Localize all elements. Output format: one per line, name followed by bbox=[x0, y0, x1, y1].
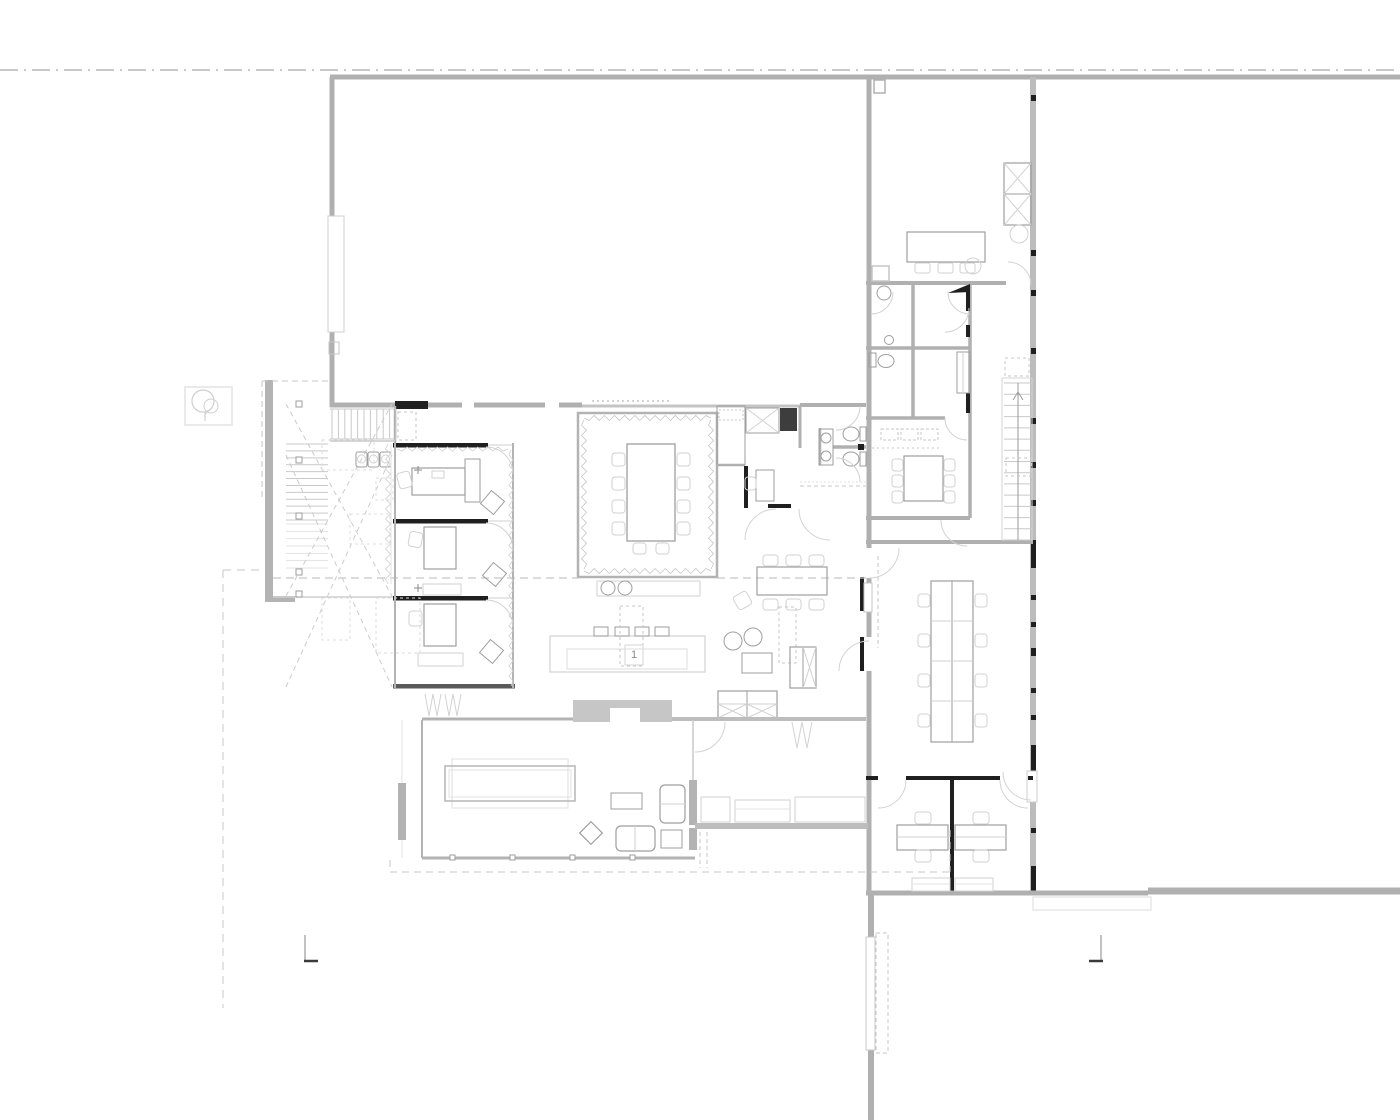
chair bbox=[892, 491, 903, 503]
window-mullion bbox=[1031, 715, 1036, 720]
armchair bbox=[481, 491, 505, 515]
ghost-box bbox=[350, 514, 390, 544]
chair bbox=[809, 555, 824, 566]
terrace-wall bbox=[265, 380, 273, 602]
post bbox=[296, 401, 302, 407]
conference-room bbox=[578, 413, 717, 577]
chair bbox=[396, 471, 413, 490]
desk bbox=[412, 468, 465, 495]
door-arc bbox=[945, 418, 967, 440]
ghost-box bbox=[901, 429, 918, 440]
stool bbox=[594, 627, 608, 636]
counter bbox=[735, 800, 790, 822]
desk-item bbox=[432, 471, 444, 478]
window-mullion bbox=[1031, 595, 1036, 600]
door-arc bbox=[799, 509, 830, 540]
stair-arrow bbox=[1018, 392, 1023, 400]
ghost-box bbox=[398, 412, 416, 440]
ghost-box bbox=[322, 440, 374, 470]
room-number-tag: 1 bbox=[623, 648, 645, 662]
yard-window bbox=[866, 937, 875, 1050]
cabinet-low bbox=[418, 653, 463, 666]
sink bbox=[821, 433, 831, 443]
chair bbox=[677, 477, 690, 490]
chair bbox=[677, 453, 690, 466]
side-table bbox=[742, 653, 772, 673]
window-mullion bbox=[1031, 745, 1036, 772]
meeting-table bbox=[904, 456, 943, 501]
door-arc bbox=[878, 780, 906, 808]
pouf bbox=[724, 632, 742, 650]
wall-black-segment bbox=[858, 444, 864, 450]
plant bbox=[1010, 225, 1028, 243]
porch-canopy bbox=[640, 708, 672, 722]
window-mullion bbox=[1031, 828, 1036, 833]
chair bbox=[975, 714, 987, 727]
chair bbox=[763, 599, 778, 610]
chair bbox=[918, 634, 930, 647]
door-arc bbox=[486, 600, 513, 627]
ghost-box bbox=[376, 478, 393, 500]
sink bbox=[821, 451, 831, 461]
chair bbox=[915, 850, 931, 862]
stool bbox=[635, 627, 649, 636]
chair bbox=[612, 522, 625, 535]
pier bbox=[398, 783, 406, 840]
post bbox=[450, 855, 455, 860]
sink bbox=[601, 581, 615, 595]
window-mullion bbox=[1031, 348, 1036, 354]
pouf bbox=[661, 830, 682, 848]
desk-return bbox=[465, 459, 480, 502]
porch-canopy bbox=[573, 708, 610, 722]
post bbox=[630, 855, 635, 860]
chair bbox=[612, 477, 625, 490]
sink bbox=[877, 286, 891, 300]
porch-canopy bbox=[573, 700, 672, 708]
stool bbox=[615, 627, 629, 636]
desk bbox=[424, 527, 456, 569]
post bbox=[296, 569, 302, 575]
chair bbox=[612, 453, 625, 466]
pier bbox=[689, 828, 697, 850]
sliding-door-leaf bbox=[860, 577, 864, 611]
window-mullion bbox=[1031, 95, 1036, 101]
pier bbox=[689, 780, 697, 825]
wall-opening bbox=[462, 401, 474, 409]
chair bbox=[809, 599, 824, 610]
kitchenette-bottom-wall bbox=[695, 823, 868, 829]
curtain-zigzag bbox=[792, 722, 812, 748]
chair bbox=[612, 500, 625, 513]
ghost-box bbox=[322, 598, 350, 640]
table bbox=[757, 567, 827, 595]
curtain-zigzag bbox=[425, 694, 441, 716]
stool bbox=[655, 627, 669, 636]
chair bbox=[786, 555, 801, 566]
window-mullion bbox=[1031, 540, 1036, 568]
chair bbox=[918, 594, 930, 607]
floor-plan-canvas: 1 bbox=[0, 0, 1400, 1120]
chair bbox=[732, 590, 752, 610]
chair bbox=[975, 674, 987, 687]
cabinet-low bbox=[423, 584, 461, 595]
door-arc bbox=[836, 458, 860, 482]
door-arc bbox=[486, 447, 513, 474]
chair bbox=[944, 459, 955, 471]
chair bbox=[656, 543, 669, 554]
lounge-table-inner bbox=[449, 770, 571, 797]
chair bbox=[915, 812, 931, 824]
chair bbox=[763, 555, 778, 566]
window-mullion bbox=[1031, 688, 1036, 693]
toilet bbox=[843, 427, 859, 441]
floor-plan-drawing bbox=[0, 0, 1400, 1120]
hall-window bbox=[328, 216, 344, 332]
door-arc bbox=[1008, 262, 1031, 285]
glass-zigzag bbox=[709, 420, 714, 569]
window-mullion bbox=[1031, 648, 1036, 656]
shaft-dark bbox=[780, 408, 797, 431]
toilet-tank bbox=[860, 427, 866, 441]
wall-frame bbox=[864, 583, 872, 612]
facade-door-frame bbox=[1027, 771, 1037, 802]
stair-arrow bbox=[1013, 392, 1018, 400]
window-mullion bbox=[1031, 622, 1036, 627]
glass-zigzag bbox=[584, 416, 711, 421]
wall-black-segment bbox=[966, 289, 970, 311]
chair bbox=[677, 500, 690, 513]
door-arc bbox=[945, 308, 969, 332]
tree-icon bbox=[204, 399, 218, 413]
wall-black-segment bbox=[768, 504, 791, 508]
ghost-box bbox=[779, 607, 796, 663]
lounge-table bbox=[445, 766, 575, 801]
post bbox=[570, 855, 575, 860]
wall-black-segment bbox=[393, 519, 488, 524]
tree-symbol-box bbox=[185, 387, 232, 425]
desk bbox=[424, 604, 456, 646]
window-mullion bbox=[1031, 250, 1036, 256]
toilet-tank bbox=[860, 452, 866, 466]
ghost-box bbox=[719, 410, 743, 420]
sink bbox=[618, 581, 632, 595]
coffee-table bbox=[611, 793, 642, 809]
post bbox=[510, 855, 515, 860]
counter bbox=[701, 797, 730, 822]
glass-zigzag bbox=[582, 420, 587, 569]
post bbox=[296, 513, 302, 519]
conference-table bbox=[627, 444, 675, 541]
door-arc bbox=[836, 406, 860, 430]
wall-opening bbox=[545, 401, 559, 409]
post bbox=[296, 591, 302, 597]
door-arc bbox=[869, 548, 899, 578]
stool bbox=[915, 263, 930, 273]
chair bbox=[786, 599, 801, 610]
ghost-box bbox=[876, 933, 888, 1053]
armchair bbox=[480, 640, 504, 664]
chair bbox=[892, 459, 903, 471]
chair bbox=[408, 531, 423, 548]
wall-notch bbox=[874, 80, 885, 93]
chair bbox=[944, 491, 955, 503]
armchair bbox=[483, 563, 507, 587]
chair bbox=[677, 522, 690, 535]
diamond-seat bbox=[580, 822, 603, 845]
door-arc bbox=[871, 292, 893, 314]
chair bbox=[409, 611, 422, 626]
sink bbox=[885, 336, 894, 345]
toilet bbox=[843, 452, 859, 466]
chair bbox=[973, 812, 989, 824]
table bbox=[907, 232, 985, 262]
wall-black-segment bbox=[966, 325, 970, 337]
pouf bbox=[744, 628, 762, 646]
chair bbox=[973, 850, 989, 862]
wall-dark bbox=[393, 684, 515, 689]
chair bbox=[975, 594, 987, 607]
planter bbox=[1033, 897, 1151, 910]
chair bbox=[918, 674, 930, 687]
chair bbox=[918, 714, 930, 727]
wall-black-segment bbox=[966, 393, 970, 413]
ghost-box bbox=[921, 429, 938, 440]
counter bbox=[795, 797, 865, 822]
door-arc bbox=[745, 509, 776, 540]
toilet bbox=[878, 355, 894, 368]
curtain-zigzag bbox=[445, 694, 461, 716]
desk bbox=[756, 470, 774, 501]
stool bbox=[938, 263, 953, 273]
window-mullion bbox=[1031, 290, 1036, 296]
ghost-box bbox=[881, 429, 898, 440]
chair bbox=[633, 543, 646, 554]
wall-shelf bbox=[872, 266, 889, 281]
closet bbox=[717, 406, 745, 465]
post bbox=[296, 457, 302, 463]
wall-black-segment bbox=[395, 401, 428, 409]
chair bbox=[944, 475, 955, 487]
door-arc bbox=[839, 641, 869, 671]
window-mullion bbox=[1031, 866, 1036, 893]
chair bbox=[975, 634, 987, 647]
glass-zigzag bbox=[584, 569, 711, 574]
chair bbox=[965, 258, 981, 274]
door-arc bbox=[695, 722, 725, 752]
chair bbox=[892, 475, 903, 487]
ghost-box bbox=[1005, 358, 1029, 376]
